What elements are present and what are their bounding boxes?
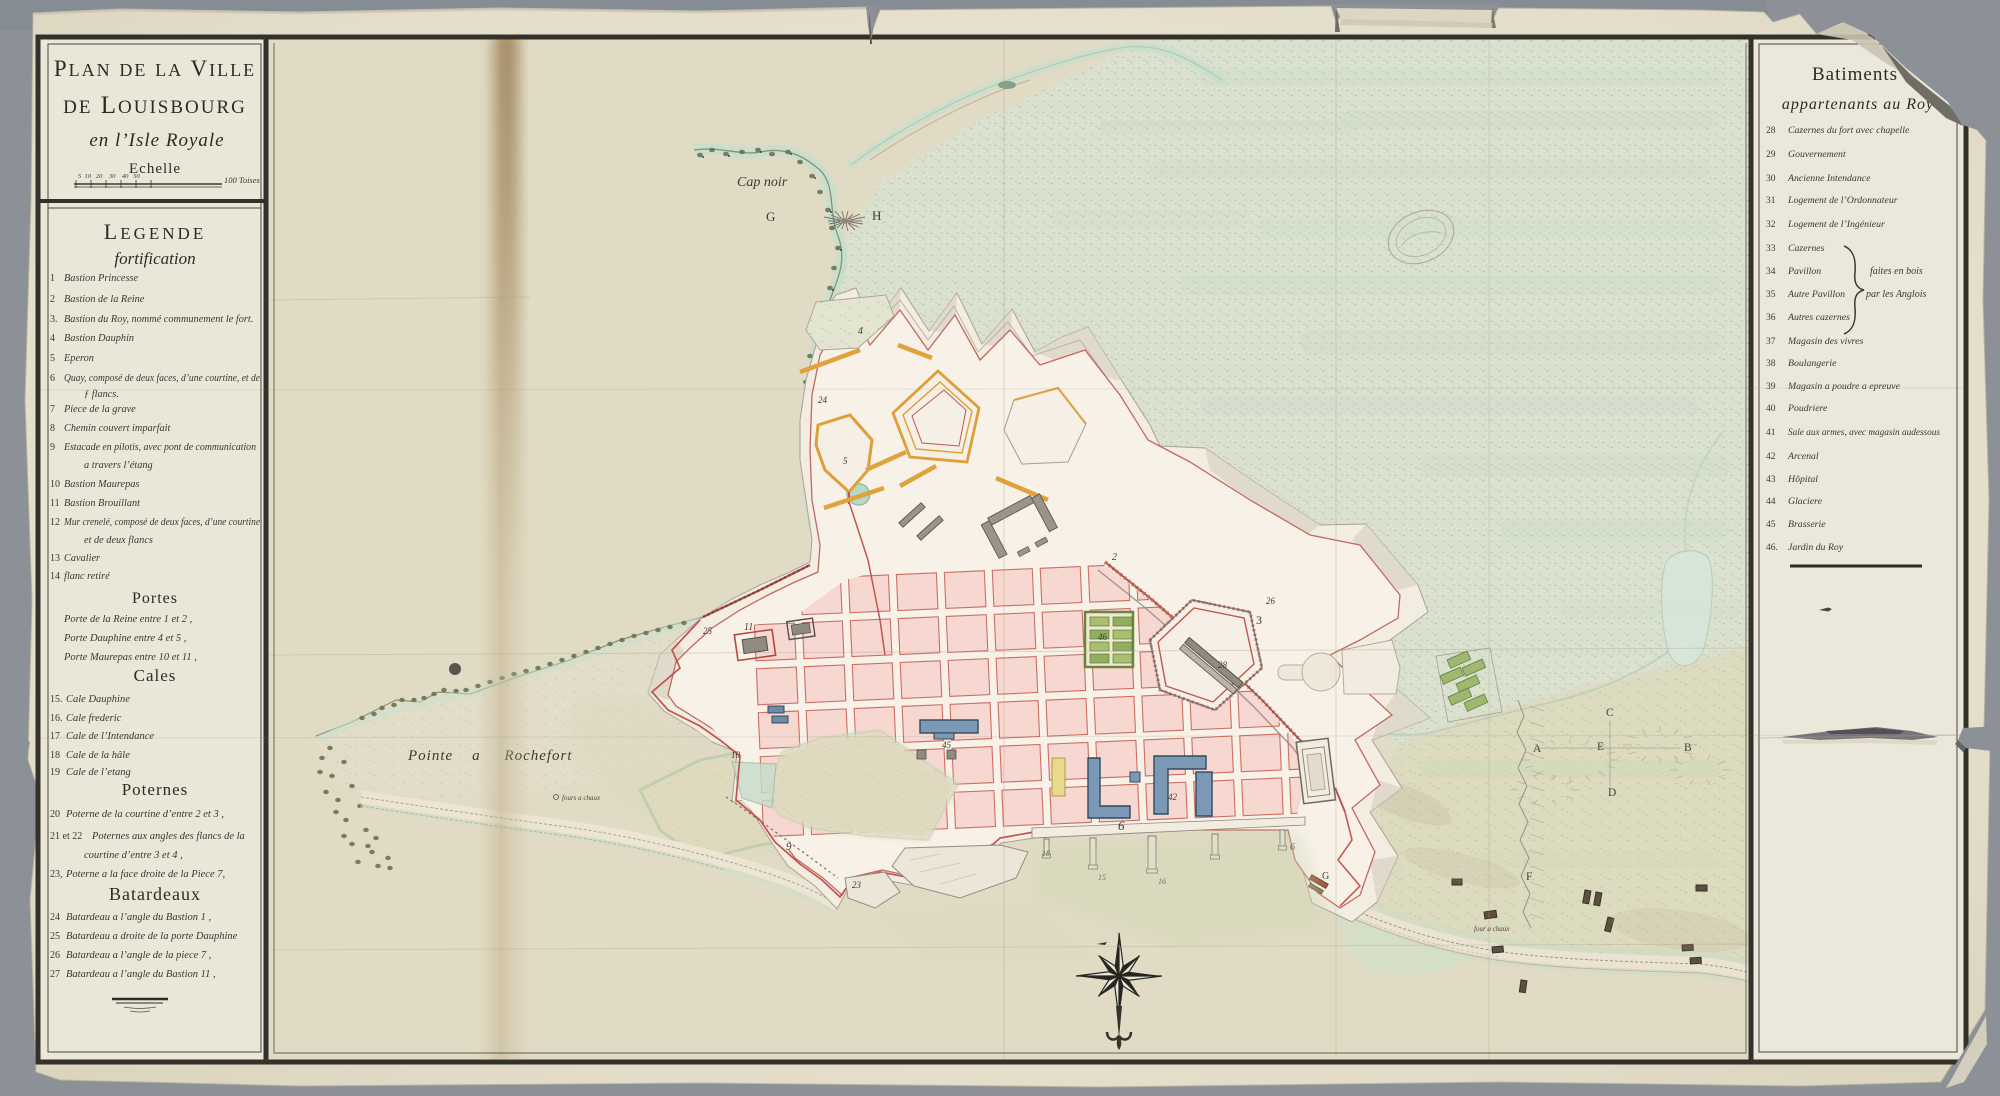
- svg-text:26: 26: [1266, 596, 1276, 606]
- svg-text:21 et 22: 21 et 22: [50, 831, 82, 842]
- svg-text:Arcenal: Arcenal: [1787, 451, 1819, 462]
- svg-text:Bastion de la Reine: Bastion de la Reine: [64, 294, 145, 305]
- svg-text:34: 34: [1766, 267, 1776, 277]
- svg-text:Hôpital: Hôpital: [1787, 474, 1818, 485]
- svg-text:Poterne a la face droite de l: Poterne a la face droite de la Piece 7,: [65, 869, 225, 880]
- svg-text:42: 42: [1766, 452, 1776, 462]
- svg-text:Cale de l’Intendance: Cale de l’Intendance: [66, 731, 154, 742]
- svg-text:faites en bois: faites en bois: [1870, 266, 1923, 277]
- svg-text:13: 13: [50, 553, 60, 564]
- svg-text:Cale de la hâle: Cale de la hâle: [66, 750, 130, 761]
- svg-text:Mur crenelé, composé de deux f: Mur crenelé, composé de deux faces, d’un…: [63, 517, 260, 528]
- svg-text:100 Toises: 100 Toises: [224, 175, 261, 185]
- svg-text:courtine d’entre 3 et 4 ,: courtine d’entre 3 et 4 ,: [84, 850, 183, 861]
- svg-text:et de deux flancs: et de deux flancs: [84, 535, 153, 546]
- svg-text:Porte Dauphine entre 4 et 5: Porte Dauphine entre 4 et 5 ,: [63, 633, 186, 644]
- svg-text:11: 11: [744, 622, 753, 633]
- svg-text:4: 4: [858, 326, 863, 337]
- svg-text:18: 18: [50, 750, 60, 761]
- svg-text:9: 9: [786, 841, 792, 853]
- svg-text:42: 42: [1168, 792, 1178, 802]
- svg-text:10: 10: [731, 750, 741, 760]
- svg-text:45: 45: [942, 740, 952, 750]
- svg-text:32: 32: [1766, 220, 1776, 230]
- svg-text:40: 40: [1766, 404, 1776, 414]
- svg-text:Poterne de la courtine d’entre: Poterne de la courtine d’entre 2 et 3 ,: [65, 809, 224, 820]
- svg-text:four a chaux: four a chaux: [1474, 925, 1510, 933]
- svg-text:par les Anglois: par les Anglois: [1865, 289, 1926, 300]
- svg-text:25: 25: [703, 626, 713, 636]
- svg-text:Brasserie: Brasserie: [1788, 519, 1826, 530]
- svg-text:G: G: [1322, 871, 1329, 882]
- svg-text:5: 5: [50, 353, 55, 364]
- svg-text:PLAN DE LA VILLE: PLAN DE LA VILLE: [54, 56, 256, 81]
- svg-text:Eperon: Eperon: [63, 353, 94, 364]
- svg-text:C: C: [1606, 707, 1614, 719]
- svg-text:Magasin a poudre a epreuve: Magasin a poudre a epreuve: [1787, 381, 1901, 392]
- svg-text:20: 20: [50, 809, 60, 820]
- svg-text:35: 35: [1766, 290, 1776, 300]
- svg-text:Batardeau a l’angle de la pi: Batardeau a l’angle de la piece 7 ,: [66, 950, 211, 961]
- svg-text:Logement de l’Ordonnateur: Logement de l’Ordonnateur: [1787, 195, 1898, 206]
- svg-text:Cale frederic: Cale frederic: [66, 713, 122, 724]
- svg-text:Bastion Dauphin: Bastion Dauphin: [64, 333, 134, 344]
- svg-text:Batardeau a droite de la por: Batardeau a droite de la porte Dauphine: [66, 931, 238, 942]
- svg-text:Cale de l’etang: Cale de l’etang: [66, 767, 131, 778]
- svg-text:6: 6: [50, 373, 55, 384]
- svg-text:39: 39: [1766, 382, 1776, 392]
- svg-text:Batiments: Batiments: [1812, 64, 1898, 85]
- svg-text:Cazernes: Cazernes: [1788, 243, 1825, 254]
- svg-text:26: 26: [50, 950, 60, 961]
- svg-text:46: 46: [1098, 632, 1108, 642]
- svg-text:8: 8: [50, 423, 55, 434]
- svg-text:Bastion Princesse: Bastion Princesse: [64, 273, 138, 284]
- svg-text:27: 27: [50, 969, 60, 980]
- svg-text:A: A: [1533, 743, 1542, 755]
- svg-text:5: 5: [843, 456, 848, 466]
- svg-text:17: 17: [50, 731, 60, 742]
- svg-text:9: 9: [50, 442, 55, 453]
- svg-text:F: F: [1526, 871, 1532, 883]
- svg-text:43: 43: [1766, 475, 1776, 485]
- svg-text:Portes: Portes: [132, 590, 178, 607]
- svg-text:19: 19: [50, 767, 60, 778]
- svg-text:23: 23: [852, 880, 862, 890]
- svg-text:Poternes: Poternes: [122, 780, 189, 799]
- svg-text:fours a chaux: fours a chaux: [562, 794, 601, 802]
- svg-text:10: 10: [50, 479, 60, 490]
- svg-text:Estacade en pilotis, avec pont: Estacade en pilotis, avec pont de commun…: [63, 442, 256, 453]
- svg-text:flanc retiré: flanc retiré: [64, 571, 110, 582]
- svg-text:Batardeau a l’angle du Bastio: Batardeau a l’angle du Bastion 11 ,: [66, 969, 216, 980]
- svg-text:46.: 46.: [1766, 543, 1778, 553]
- svg-text:Bastion Brouillant: Bastion Brouillant: [64, 498, 141, 509]
- svg-text:a travers l’étang: a travers l’étang: [84, 460, 153, 471]
- svg-text:Porte Maurepas entre 10 et 1: Porte Maurepas entre 10 et 11 ,: [63, 652, 197, 663]
- svg-text:Bastion du Roy, nommé communem: Bastion du Roy, nommé communement le for…: [64, 314, 253, 325]
- svg-text:Glaciere: Glaciere: [1788, 496, 1823, 507]
- svg-text:Porte de la Reine entre 1 et: Porte de la Reine entre 1 et 2 ,: [63, 614, 192, 625]
- svg-text:6: 6: [1118, 818, 1125, 833]
- svg-text:4: 4: [50, 333, 55, 344]
- svg-text:2: 2: [1112, 552, 1117, 563]
- svg-text:11: 11: [50, 498, 60, 509]
- svg-text:Cazernes du fort avec chapelle: Cazernes du fort avec chapelle: [1788, 125, 1910, 136]
- svg-text:DE LOUISBOURG: DE LOUISBOURG: [63, 92, 247, 119]
- svg-text:Autre Pavillon: Autre Pavillon: [1787, 289, 1845, 300]
- svg-text:Jardin du Roy: Jardin du Roy: [1788, 542, 1844, 553]
- svg-text:36: 36: [1766, 313, 1776, 323]
- svg-text:3: 3: [1256, 613, 1262, 627]
- svg-text:Gouvernement: Gouvernement: [1788, 149, 1846, 160]
- svg-text:24: 24: [818, 395, 828, 405]
- svg-text:15.: 15.: [50, 694, 63, 705]
- svg-text:28: 28: [1766, 126, 1776, 136]
- svg-text:Autres cazernes: Autres cazernes: [1787, 312, 1850, 323]
- svg-text:30: 30: [1766, 174, 1776, 184]
- svg-text:7: 7: [50, 404, 55, 415]
- svg-text:Cap noir: Cap noir: [737, 175, 788, 190]
- svg-text:Batardeaux: Batardeaux: [109, 884, 201, 904]
- svg-text:Logement de l’Ingénieur: Logement de l’Ingénieur: [1787, 219, 1885, 230]
- svg-text:Sale aux armes, avec magasin a: Sale aux armes, avec magasin audessous: [1788, 427, 1940, 438]
- svg-text:Poudriere: Poudriere: [1787, 403, 1828, 414]
- svg-text:12: 12: [50, 517, 60, 528]
- svg-text:Boulangerie: Boulangerie: [1788, 358, 1837, 369]
- svg-text:Quay, composé de deux faces, d: Quay, composé de deux faces, d’une court…: [64, 373, 260, 384]
- svg-text:24: 24: [50, 912, 60, 923]
- svg-text:41: 41: [1766, 428, 1776, 438]
- svg-text:Ancienne Intendance: Ancienne Intendance: [1787, 173, 1871, 184]
- svg-text:Cavalier: Cavalier: [64, 553, 101, 564]
- svg-text:16.: 16.: [50, 713, 63, 724]
- svg-text:5 10 20 30 40 50: 5 10 20 30 40 50: [78, 173, 141, 180]
- svg-text:Piece de la grave: Piece de la grave: [63, 404, 136, 415]
- svg-text:appartenants au Roy: appartenants au Roy: [1782, 96, 1934, 113]
- svg-text:Chemin couvert imparfait: Chemin couvert imparfait: [64, 423, 172, 434]
- svg-text:Batardeau a l’angle du Bastio: Batardeau a l’angle du Bastion 1 ,: [66, 912, 211, 923]
- svg-text:en l’Isle Royale: en l’Isle Royale: [89, 130, 224, 151]
- svg-text:25: 25: [50, 931, 60, 942]
- svg-text:ƒ flancs.: ƒ flancs.: [84, 389, 119, 400]
- svg-text:D: D: [1608, 787, 1616, 799]
- svg-text:29: 29: [1766, 150, 1776, 160]
- svg-text:33: 33: [1766, 244, 1776, 254]
- svg-text:31: 31: [1766, 196, 1776, 206]
- svg-text:Magasin des vivres: Magasin des vivres: [1787, 336, 1863, 347]
- svg-text:Cales: Cales: [134, 666, 177, 685]
- svg-text:14: 14: [50, 571, 60, 582]
- svg-text:23,: 23,: [50, 869, 63, 880]
- svg-text:G: G: [766, 209, 775, 224]
- svg-text:3.: 3.: [50, 314, 58, 325]
- svg-text:28: 28: [1218, 660, 1228, 670]
- svg-text:1: 1: [50, 273, 55, 284]
- svg-text:37: 37: [1766, 337, 1776, 347]
- svg-text:Cale Dauphine: Cale Dauphine: [66, 694, 130, 705]
- svg-text:45: 45: [1766, 520, 1776, 530]
- svg-text:H: H: [872, 208, 881, 223]
- svg-text:Bastion Maurepas: Bastion Maurepas: [64, 479, 139, 490]
- svg-text:fortification: fortification: [114, 249, 195, 268]
- svg-text:Poternes aux angles des flancs: Poternes aux angles des flancs de la: [91, 831, 245, 842]
- svg-text:38: 38: [1766, 359, 1776, 369]
- svg-text:2: 2: [50, 294, 55, 305]
- svg-text:Pavillon: Pavillon: [1787, 266, 1821, 277]
- svg-text:44: 44: [1766, 497, 1776, 507]
